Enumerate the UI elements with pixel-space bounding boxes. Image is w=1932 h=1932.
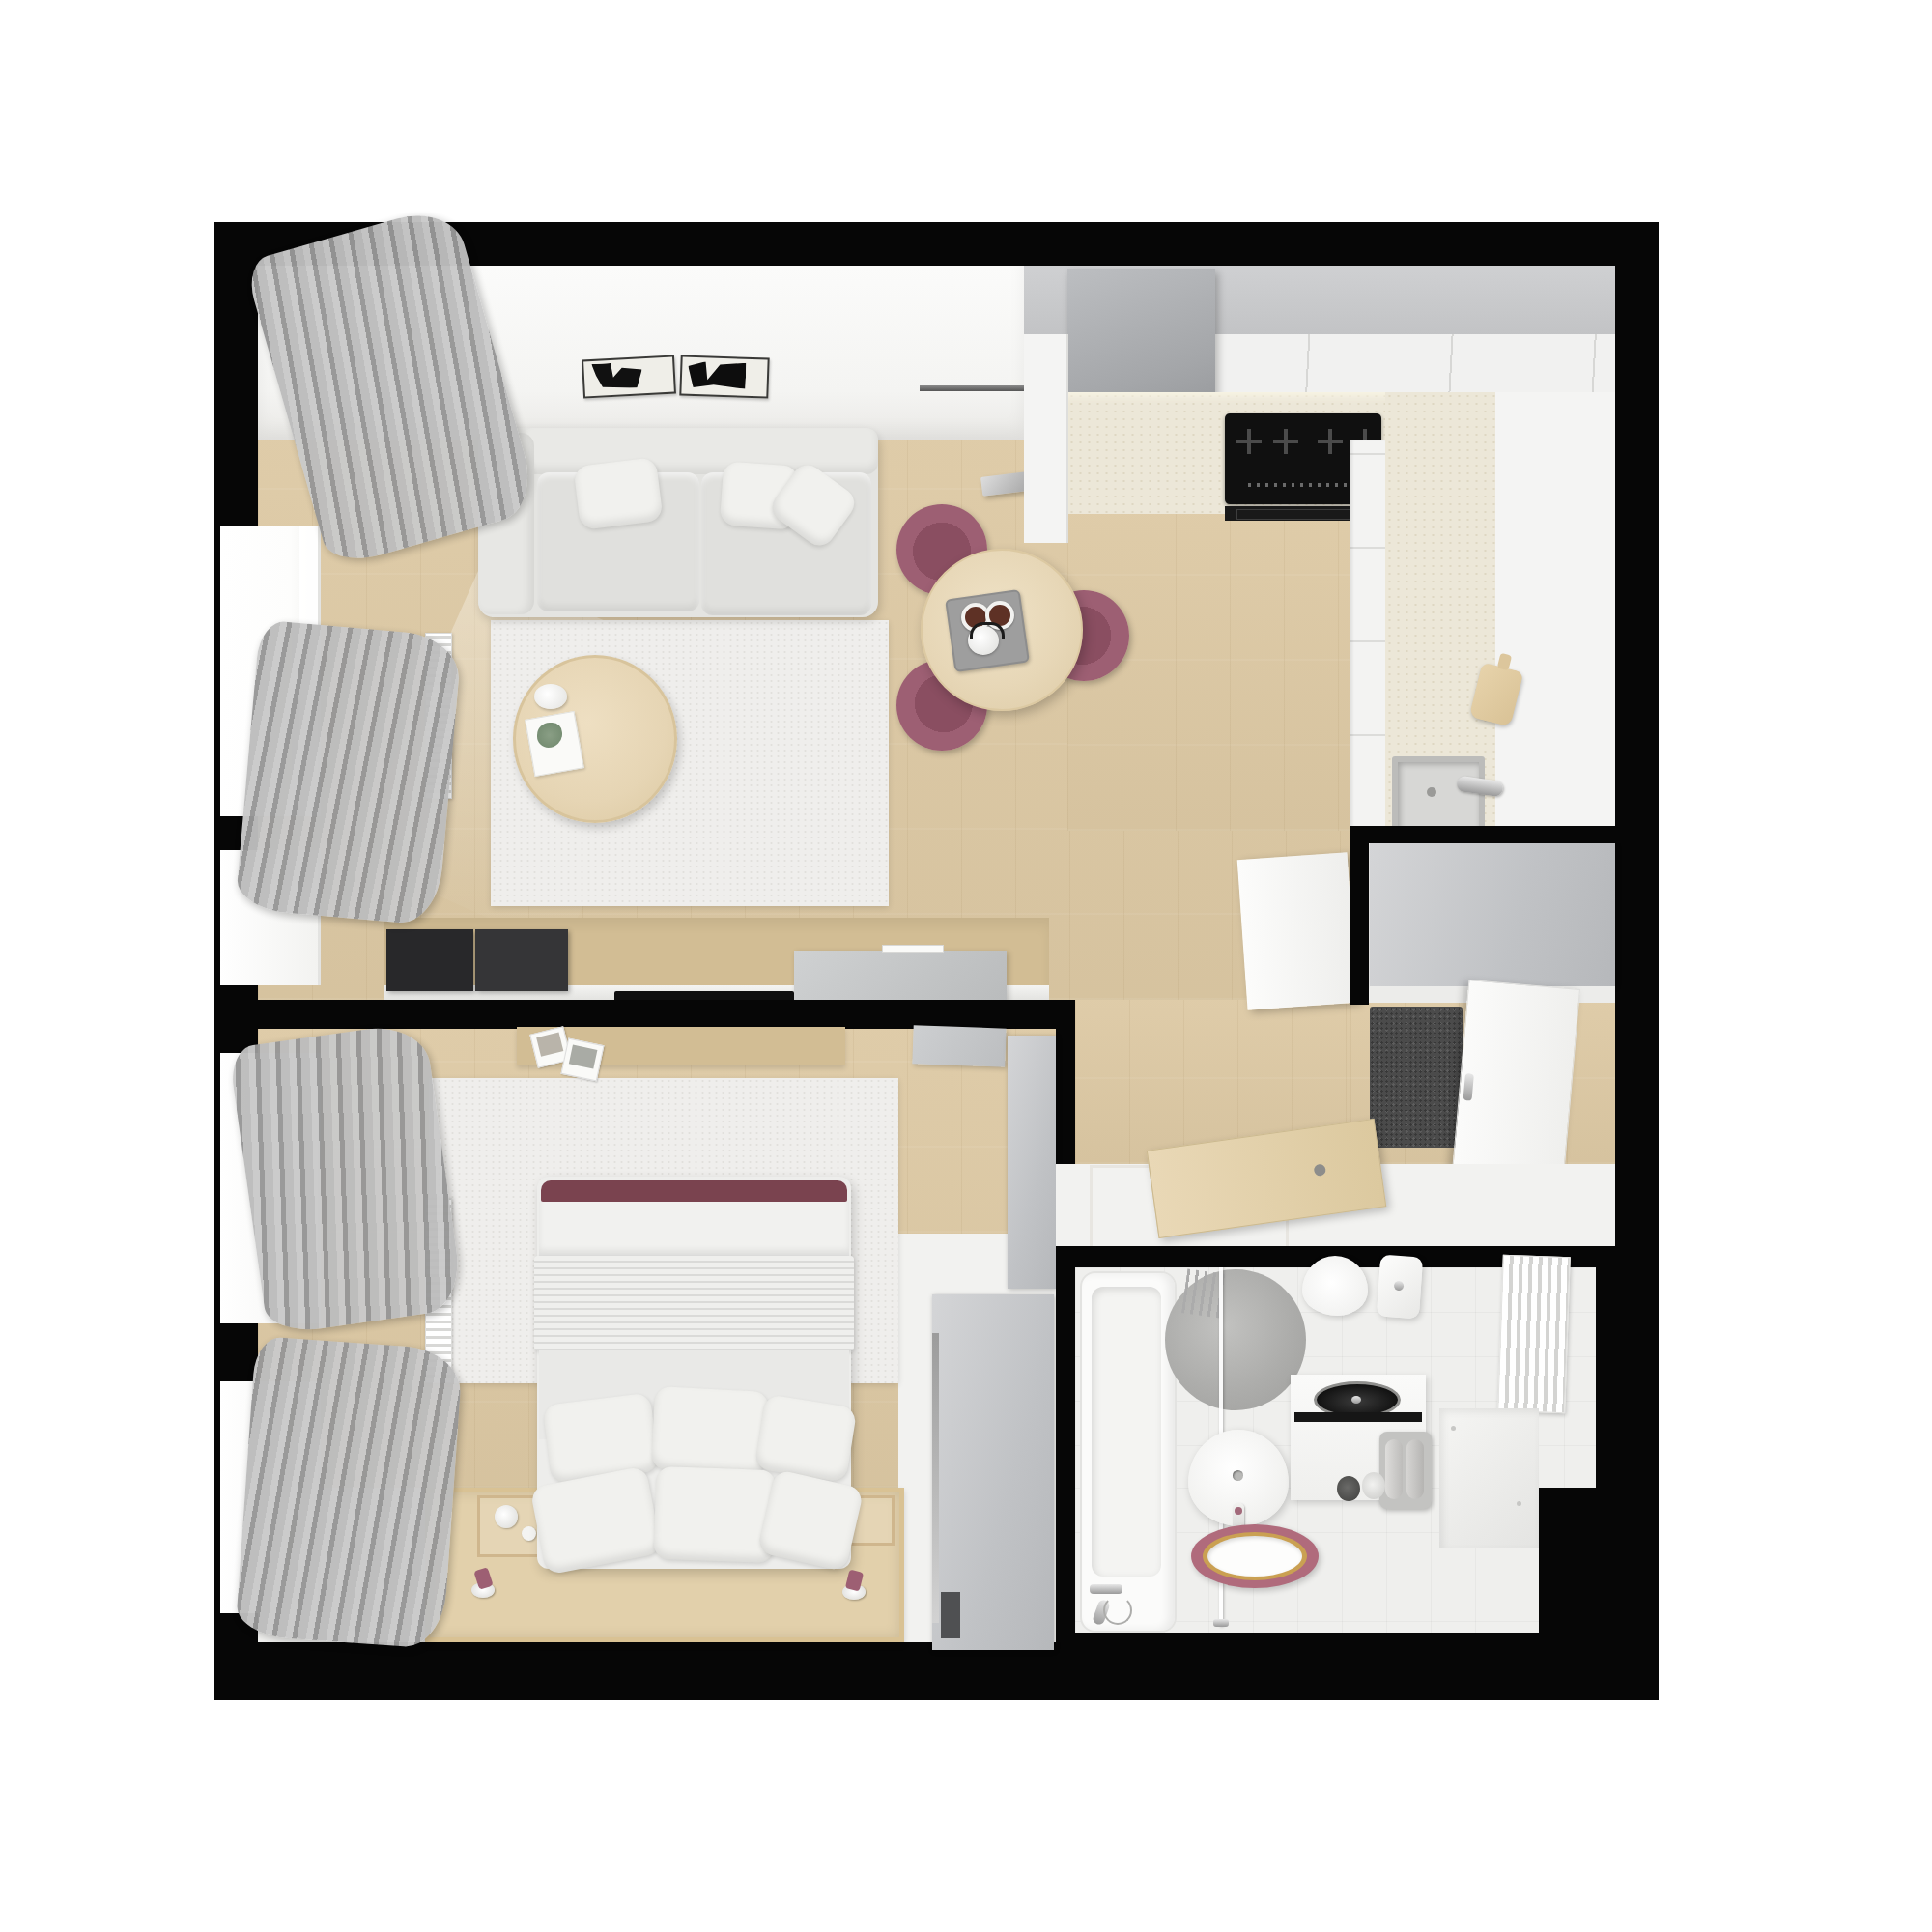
entry-closet — [1370, 843, 1615, 986]
storage-box — [386, 929, 473, 991]
wall-entry-vertical — [1350, 826, 1369, 1005]
toilet-cistern — [1377, 1255, 1423, 1320]
tray-mug — [522, 1526, 536, 1541]
wall-art-frame — [582, 355, 676, 399]
bathtub-basin — [1092, 1287, 1161, 1577]
shower-hose — [1103, 1596, 1132, 1625]
sink-drain — [1427, 787, 1436, 797]
kitchen-side-floor — [1495, 392, 1615, 828]
towel-caddy — [1379, 1432, 1432, 1509]
entry-doormat — [1370, 1007, 1463, 1148]
wall-bathroom-left — [1056, 1246, 1075, 1642]
tray-kettle — [495, 1505, 518, 1528]
rolled-towel — [1406, 1439, 1424, 1499]
bedroom-curtains-lower — [235, 1336, 463, 1649]
entrance-door — [1451, 980, 1580, 1191]
bed-maroon-throw — [541, 1180, 847, 1202]
vase — [534, 684, 567, 709]
bed-striped-duvet — [534, 1256, 854, 1350]
wardrobe-bracket — [941, 1592, 960, 1638]
ring-center — [1207, 1536, 1302, 1577]
door-handle — [1463, 1073, 1474, 1101]
kettle-handle — [970, 622, 1005, 639]
bed-pillow — [753, 1394, 857, 1483]
bathtub — [1080, 1271, 1177, 1633]
desk-chair-pad — [912, 1025, 1006, 1066]
flush-button — [1394, 1281, 1405, 1292]
rolled-towel-small — [1362, 1472, 1385, 1499]
basin-drain — [1233, 1470, 1243, 1481]
bed-pillow — [651, 1386, 769, 1475]
bed-pillow — [653, 1466, 776, 1563]
toilet-bowl — [1302, 1256, 1368, 1316]
bathroom-right-wall-face — [1439, 1408, 1539, 1548]
bedroom-wardrobe — [932, 1294, 1054, 1650]
bath-mixer — [1090, 1584, 1122, 1594]
rolled-towel — [1385, 1439, 1403, 1499]
wall-entry-horizontal — [1350, 826, 1659, 843]
art-abstract-shape — [688, 361, 747, 389]
sofa-backrest — [522, 428, 878, 474]
bed-sheet-fold — [539, 1202, 849, 1256]
pantry-cabinet — [1024, 334, 1068, 543]
wardrobe-rail — [932, 1333, 939, 1623]
kitchen-tall-cabinet-column — [1350, 440, 1385, 828]
rolled-towel-small — [1337, 1476, 1360, 1501]
washer-control-strip — [1294, 1412, 1422, 1422]
art-abstract-shape — [591, 361, 642, 390]
door-leaf-handle — [1314, 1163, 1327, 1177]
storage-box — [475, 929, 568, 991]
towel-radiator — [1497, 1255, 1571, 1413]
cooktop-controls — [1248, 483, 1360, 487]
living-curtains-lower — [235, 619, 462, 925]
sofa-pillow — [573, 457, 663, 530]
media-gray-box — [794, 951, 1007, 1007]
wall-partition-horizontal — [214, 1000, 1075, 1029]
sliding-door-panel — [1008, 1036, 1056, 1289]
remote-pencil — [882, 945, 944, 953]
bedroom-curtains-upper — [228, 1021, 465, 1336]
polaroid-photo — [560, 1037, 604, 1081]
wall-bedroom-east — [1056, 1024, 1075, 1164]
bedroom-doorway-gap — [1056, 1164, 1075, 1249]
floor-plan-canvas — [0, 0, 1932, 1932]
pink-ring-rug — [1191, 1524, 1319, 1588]
open-closet-door — [1237, 852, 1358, 1010]
glass-screen-foot — [1213, 1619, 1229, 1627]
wall-art-frame — [679, 355, 769, 398]
